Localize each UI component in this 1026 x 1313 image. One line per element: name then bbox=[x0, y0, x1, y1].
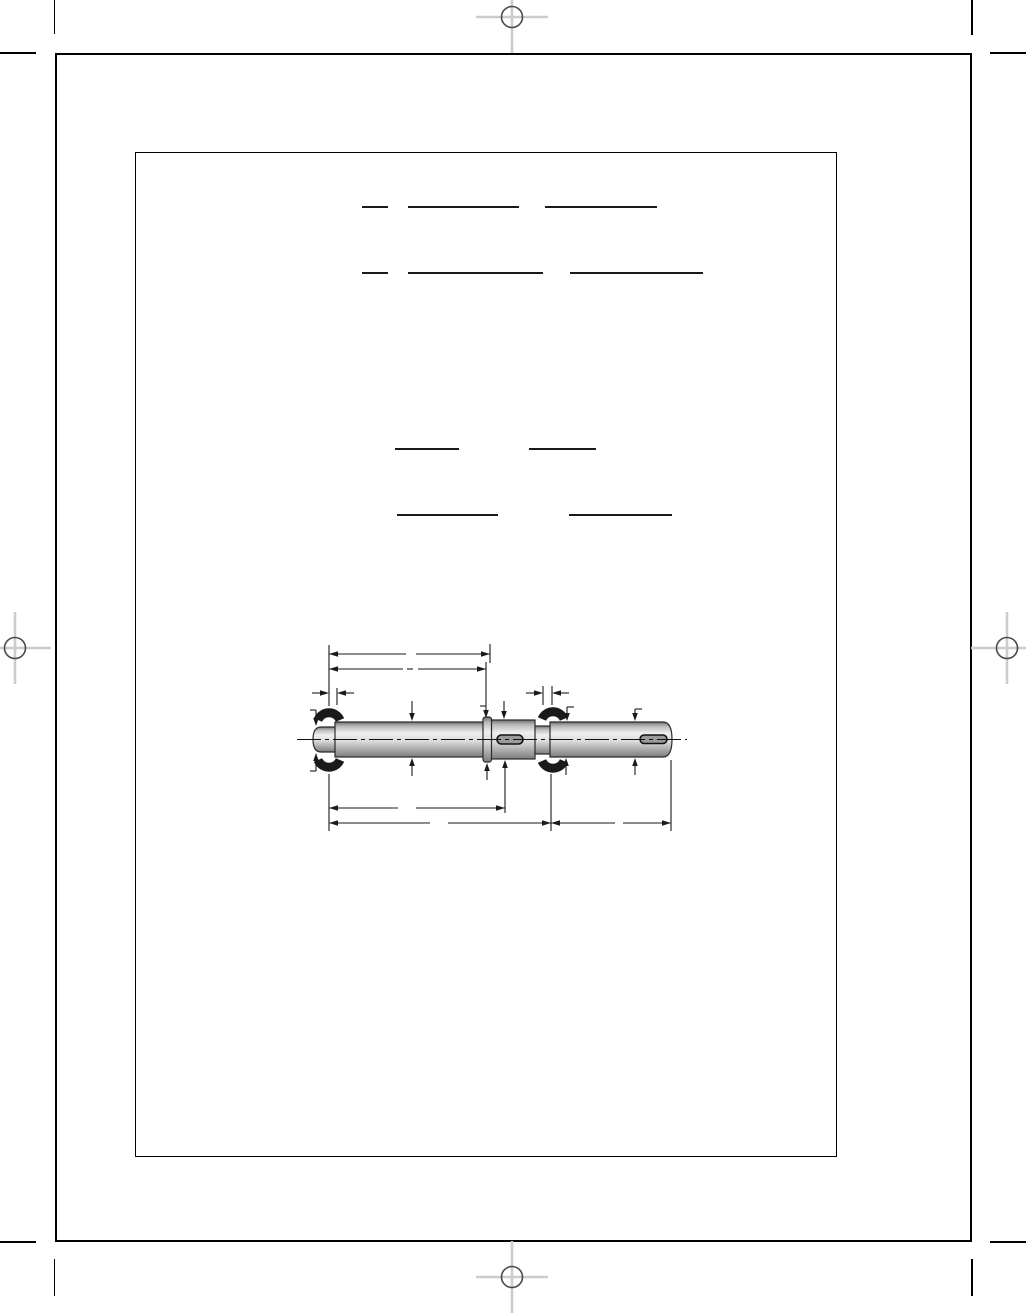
crop-mark-bottom-right-v bbox=[971, 1259, 973, 1296]
shaft-drawing-svg bbox=[290, 635, 690, 845]
right-bearing-top-icon bbox=[542, 712, 564, 719]
registration-mark-icon bbox=[971, 612, 1026, 684]
crop-mark-bottom-left-v bbox=[54, 1259, 56, 1296]
registration-mark-icon bbox=[476, 1241, 548, 1313]
crop-mark-bottom-left-h bbox=[0, 1241, 36, 1243]
blank-line bbox=[397, 514, 498, 516]
blank-line bbox=[408, 272, 543, 274]
right-bearing-bottom-icon bbox=[542, 761, 564, 768]
blank-line bbox=[408, 206, 519, 208]
crop-mark-top-right-v bbox=[971, 0, 973, 35]
blank-line bbox=[569, 514, 672, 516]
crop-mark-top-right-h bbox=[990, 52, 1026, 54]
crop-mark-top-left-h bbox=[0, 52, 36, 54]
crop-mark-top-left-v bbox=[54, 0, 56, 34]
left-bearing-top-icon bbox=[318, 713, 340, 720]
blank-line bbox=[362, 206, 388, 208]
shaft-drawing bbox=[290, 635, 690, 845]
blank-line bbox=[395, 448, 459, 450]
blank-line bbox=[545, 206, 657, 208]
blank-line bbox=[570, 272, 703, 274]
left-bearing-bottom-icon bbox=[318, 760, 340, 767]
blank-line bbox=[362, 272, 388, 274]
crop-mark-bottom-right-h bbox=[990, 1241, 1026, 1243]
registration-mark-icon bbox=[0, 612, 51, 684]
press-sheet-page: { "document": { "kind": "blank engineeri… bbox=[0, 0, 1026, 1296]
registration-mark-icon bbox=[476, 0, 548, 53]
blank-line bbox=[529, 448, 596, 450]
